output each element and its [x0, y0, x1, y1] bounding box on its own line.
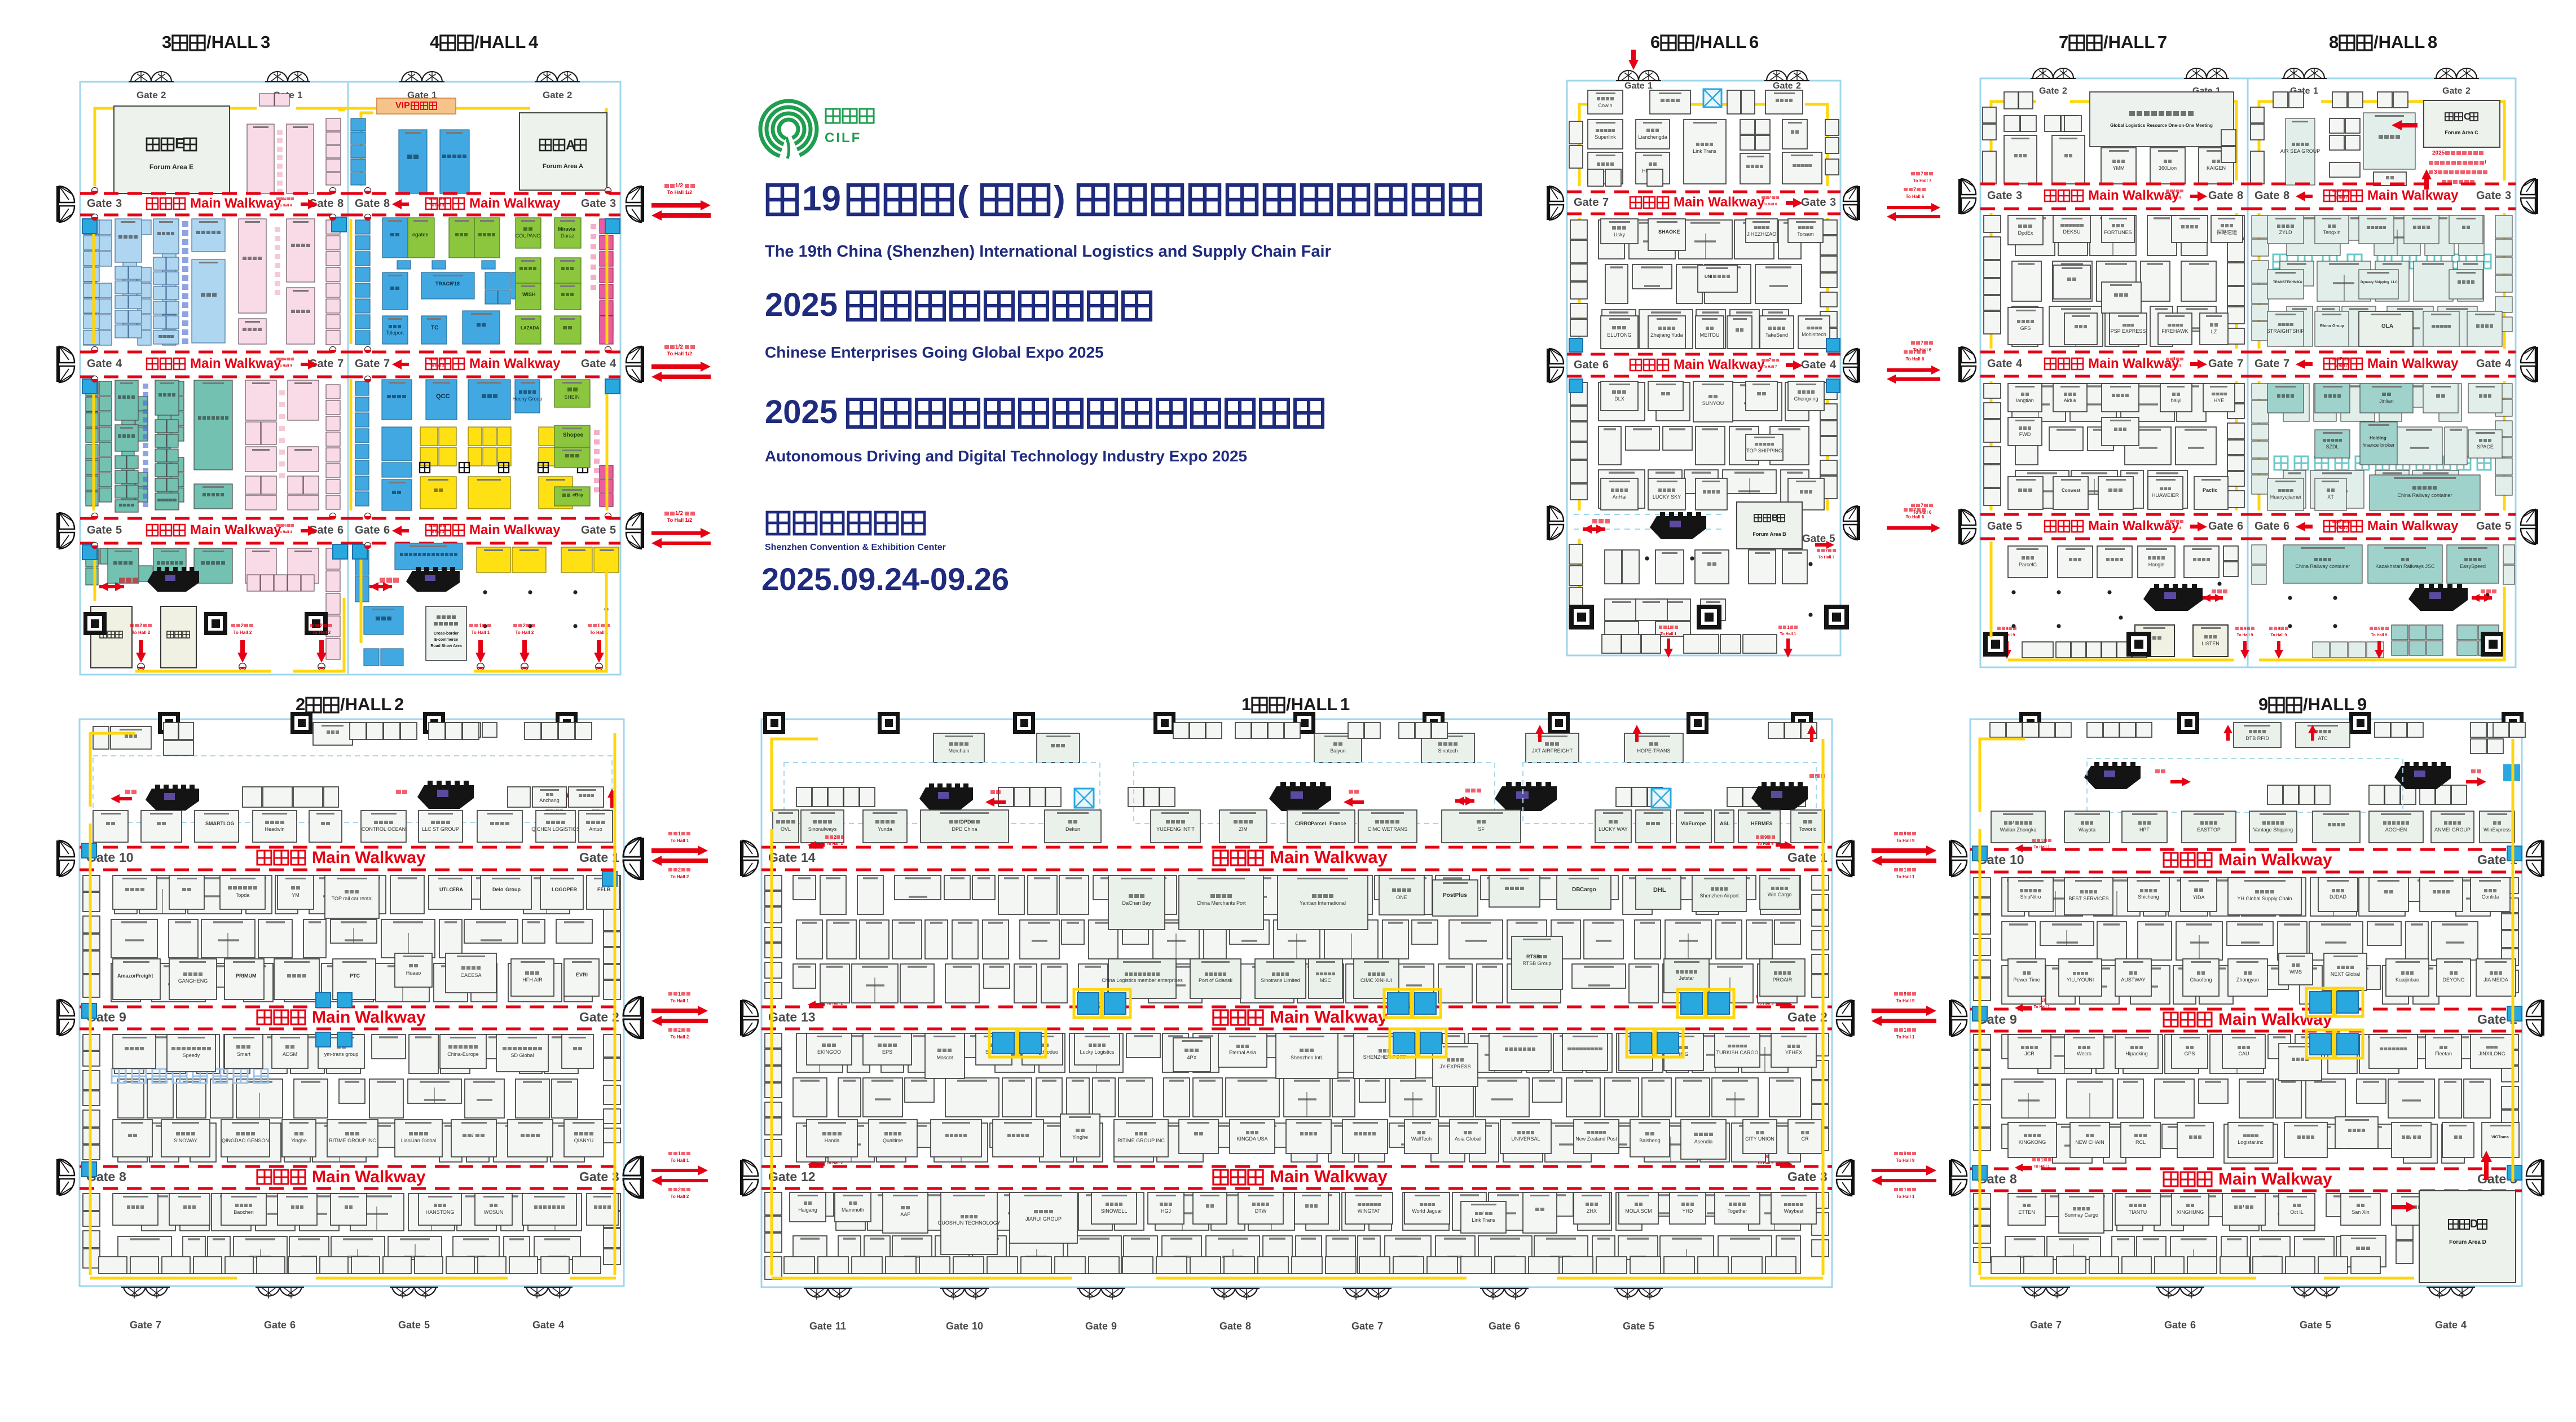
svg-text:To Hall 1: To Hall 1 [1661, 632, 1677, 636]
svg-text:Gate: Gate [532, 1319, 555, 1331]
svg-text:Link Trans: Link Trans [1472, 1217, 1495, 1223]
svg-text:Main: Main [190, 196, 221, 211]
svg-text:FORTUNES: FORTUNES [2104, 230, 2132, 235]
svg-text:LAZADA: LAZADA [521, 325, 539, 331]
svg-text:DHL: DHL [1653, 887, 1666, 893]
svg-text:ZYLD: ZYLD [2279, 230, 2292, 235]
svg-text:Main: Main [2218, 851, 2257, 869]
svg-text:Shopee: Shopee [563, 432, 584, 438]
svg-text:Mascot: Mascot [936, 1055, 953, 1060]
svg-text:KINGDA USA: KINGDA USA [1236, 1136, 1267, 1142]
svg-text:/DPD: /DPD [959, 819, 971, 825]
svg-text:Gate: Gate [2476, 358, 2501, 370]
svg-text:To Hall 1: To Hall 1 [1780, 632, 1796, 636]
svg-text:Hipacking: Hipacking [2125, 1051, 2148, 1056]
svg-text:9: 9 [1904, 831, 1906, 837]
svg-text:To Hall 2: To Hall 2 [827, 842, 843, 846]
svg-text:2: 2 [678, 1027, 681, 1033]
svg-text:DpdEx: DpdEx [2018, 230, 2033, 236]
svg-text:YUEFENG INT'T: YUEFENG INT'T [1156, 826, 1195, 832]
svg-text:9: 9 [2357, 694, 2367, 714]
svg-text:Logistar.inc: Logistar.inc [2238, 1139, 2264, 1145]
svg-text:Gate: Gate [2208, 190, 2233, 202]
svg-text:Gate: Gate [355, 524, 380, 536]
svg-text:2: 2 [567, 90, 572, 100]
svg-text:JY-EXPRESS: JY-EXPRESS [1439, 1064, 1470, 1069]
svg-text:Walkway: Walkway [1708, 195, 1765, 210]
svg-text:Gate: Gate [130, 1319, 152, 1331]
svg-text:6: 6 [290, 1319, 296, 1331]
svg-text:OVL: OVL [781, 826, 791, 832]
svg-text:10: 10 [2010, 852, 2024, 867]
svg-text:Main: Main [469, 196, 500, 211]
svg-text:14: 14 [801, 850, 816, 865]
svg-text:9: 9 [2244, 626, 2247, 631]
svg-text:6: 6 [337, 524, 344, 536]
svg-text:Teleport: Teleport [386, 330, 404, 336]
svg-text:Walkway: Walkway [2402, 356, 2459, 371]
svg-text:Gate: Gate [2476, 520, 2501, 532]
svg-text:DTW: DTW [1255, 1208, 1267, 1214]
svg-text:2: 2 [2465, 86, 2471, 96]
svg-text:Gate: Gate [1574, 196, 1599, 209]
svg-text:Sinotech: Sinotech [1438, 748, 1457, 754]
svg-text:To Hall 4: To Hall 4 [278, 531, 292, 534]
svg-text:Asendia: Asendia [1694, 1139, 1713, 1144]
svg-text:Gate: Gate [581, 524, 606, 536]
svg-text:8: 8 [2283, 190, 2289, 202]
svg-text:Shenzhen Convention & Exhibiti: Shenzhen Convention & Exhibition Center [765, 543, 946, 552]
svg-text:Walkway: Walkway [224, 196, 281, 211]
svg-text:To Hall 1/2: To Hall 1/2 [667, 190, 692, 195]
svg-text:Port of Gdansk: Port of Gdansk [1199, 978, 1233, 983]
svg-text:Toworld: Toworld [1799, 826, 1816, 832]
svg-text:Freight: Freight [136, 973, 153, 979]
svg-text:5: 5 [424, 1319, 430, 1331]
svg-text:4PX: 4PX [1187, 1055, 1196, 1060]
svg-text:LLC ST GROUP: LLC ST GROUP [422, 826, 459, 832]
svg-text:DLX: DLX [1614, 396, 1624, 402]
svg-text:CILF: CILF [825, 130, 861, 146]
svg-text:To Hall 9: To Hall 9 [1896, 838, 1915, 843]
svg-text:2: 2 [296, 694, 305, 714]
svg-text:WinExpress: WinExpress [2483, 827, 2511, 833]
svg-text:Superlink: Superlink [1595, 134, 1616, 140]
svg-text:5: 5 [2326, 1319, 2331, 1331]
svg-text:1/2: 1/2 [675, 344, 683, 350]
svg-text:YIDA: YIDA [2192, 895, 2204, 900]
svg-text:10: 10 [972, 1320, 983, 1332]
svg-text:6: 6 [1602, 359, 1609, 371]
svg-text:Main: Main [1270, 847, 1310, 867]
svg-text:Gate: Gate [1787, 850, 1816, 865]
svg-text:7: 7 [1921, 503, 1923, 508]
svg-text:Gate: Gate [355, 358, 380, 370]
svg-text:9: 9 [2006, 626, 2009, 631]
svg-text:Main: Main [1674, 357, 1705, 372]
svg-text:SD Global: SD Global [510, 1053, 534, 1058]
svg-text:AAF: AAF [900, 1212, 910, 1217]
svg-text:4: 4 [1830, 359, 1837, 371]
svg-text:5: 5 [2016, 520, 2022, 532]
svg-text:DPD China: DPD China [952, 826, 977, 832]
svg-text:CAU: CAU [2238, 1051, 2249, 1056]
svg-text:19: 19 [802, 179, 841, 218]
svg-text:4: 4 [430, 32, 440, 52]
svg-text:MSC: MSC [1320, 978, 1332, 983]
svg-text:Autonomous Driving and Digital: Autonomous Driving and Digital Technolog… [765, 447, 1247, 465]
svg-text:YFHEX: YFHEX [1785, 1050, 1802, 1055]
svg-text:To Hall 2: To Hall 2 [671, 1034, 689, 1040]
svg-text:New Zealand Post: New Zealand Post [1575, 1136, 1617, 1142]
svg-text:To Hall 6: To Hall 6 [1906, 356, 1925, 362]
svg-text:Huanyujiamei: Huanyujiamei [2270, 494, 2301, 500]
svg-text:DJDAD: DJDAD [2330, 894, 2347, 900]
svg-text:/HALL: /HALL [2374, 32, 2425, 52]
svg-text:Wayota: Wayota [2079, 827, 2095, 833]
svg-text:7: 7 [2237, 358, 2243, 370]
svg-text:XT: XT [2327, 494, 2334, 500]
svg-text:6: 6 [2237, 520, 2243, 532]
svg-text:Walkway: Walkway [355, 1168, 426, 1186]
svg-text:1: 1 [479, 623, 482, 628]
svg-text:Main: Main [190, 522, 221, 538]
svg-text:WISH: WISH [522, 292, 536, 297]
svg-text:EPS: EPS [882, 1049, 892, 1055]
svg-text:Walkway: Walkway [504, 196, 561, 211]
svg-text:): ) [1054, 179, 1065, 218]
svg-text:7: 7 [1769, 358, 1771, 362]
svg-text:Qualtime: Qualtime [883, 1138, 903, 1143]
svg-text:Gate: Gate [1987, 190, 2012, 202]
svg-text:Amazon: Amazon [117, 973, 137, 979]
svg-text:Main: Main [2088, 356, 2119, 371]
svg-text:1: 1 [678, 831, 681, 837]
svg-text:MEITOU: MEITOU [1700, 332, 1720, 338]
svg-text:To Hall 3: To Hall 3 [430, 531, 444, 534]
svg-text:Aiduk: Aiduk [2064, 398, 2077, 403]
svg-text:Gate: Gate [1987, 358, 2012, 370]
svg-text:Cross-border: Cross-border [434, 632, 459, 636]
svg-text:DEKSU: DEKSU [2063, 229, 2080, 235]
svg-text:To Hall 1: To Hall 1 [671, 1158, 689, 1163]
svg-text:LZ: LZ [2211, 329, 2217, 334]
svg-text:To Hall 7: To Hall 7 [1818, 556, 1835, 560]
svg-text:VIP: VIP [395, 101, 410, 111]
svg-text:To Hall 9: To Hall 9 [2237, 633, 2253, 637]
svg-text:2025: 2025 [2432, 150, 2445, 156]
svg-text:Gate: Gate [2254, 358, 2279, 370]
svg-text:Baiyun: Baiyun [1330, 748, 1346, 754]
svg-text:Power Time: Power Time [2013, 977, 2040, 983]
svg-text:China Merchants Port: China Merchants Port [1196, 900, 1246, 906]
svg-text:WallTech: WallTech [1411, 1136, 1432, 1142]
svg-text:2025.09.24-09.26: 2025.09.24-09.26 [761, 561, 1009, 597]
svg-text:1: 1 [297, 90, 302, 100]
svg-text:4: 4 [610, 358, 617, 370]
svg-text:China Logistics member enterpr: China Logistics member enterprises [1102, 978, 1183, 983]
svg-text:To Hall 9: To Hall 9 [1896, 1158, 1915, 1163]
svg-text:1: 1 [1904, 1187, 1906, 1192]
svg-text:Walkway: Walkway [2261, 1170, 2332, 1188]
svg-text:7: 7 [1921, 340, 1923, 346]
svg-text:5: 5 [2505, 520, 2511, 532]
svg-text:4: 4 [2016, 358, 2023, 370]
svg-text:2025: 2025 [765, 287, 838, 323]
svg-text:2: 2 [678, 867, 681, 873]
svg-text:WMS: WMS [2289, 969, 2302, 975]
svg-text:ASL: ASL [1720, 821, 1730, 826]
svg-text:JIHEZHIZAO: JIHEZHIZAO [1747, 231, 1777, 237]
svg-text:Gate: Gate [579, 1169, 608, 1184]
svg-text:To Hall 7: To Hall 7 [1763, 366, 1777, 369]
svg-text:2: 2 [834, 835, 836, 840]
svg-text:Hangle: Hangle [2148, 562, 2165, 567]
svg-text:5: 5 [116, 524, 122, 536]
svg-text:2: 2 [320, 623, 323, 628]
svg-text:Gate: Gate [1351, 1320, 1374, 1332]
svg-text:3: 3 [436, 524, 438, 528]
svg-text:Parcel: Parcel [1311, 821, 1326, 826]
svg-text:Gate: Gate [2476, 190, 2501, 202]
svg-text:Gate: Gate [2442, 86, 2463, 96]
svg-text:HUAWEIER: HUAWEIER [2152, 492, 2179, 498]
svg-text:11: 11 [835, 1320, 846, 1332]
svg-text:Gate: Gate [2254, 190, 2279, 202]
svg-text:Gate: Gate [2208, 520, 2233, 532]
svg-text:To Hall 1: To Hall 1 [1896, 874, 1915, 879]
svg-text:HYE: HYE [2214, 398, 2225, 403]
svg-text:To Hall 2: To Hall 2 [234, 630, 252, 635]
svg-text:CIRRO: CIRRO [1295, 821, 1311, 826]
svg-text:KINGKONG: KINGKONG [2019, 1139, 2046, 1145]
svg-text:1/2: 1/2 [675, 510, 683, 517]
svg-text:Topda: Topda [236, 892, 250, 898]
svg-text:GLA: GLA [2381, 323, 2393, 329]
svg-text:To Hall 8: To Hall 8 [2168, 196, 2182, 200]
svg-text:4: 4 [284, 197, 286, 201]
svg-text:1: 1 [1648, 81, 1653, 91]
svg-text:COUPANG: COUPANG [516, 233, 541, 239]
svg-text:Gate: Gate [581, 358, 606, 370]
svg-text:Walkway: Walkway [224, 356, 281, 371]
svg-text:Forum Area C: Forum Area C [2445, 130, 2478, 135]
svg-text:Conlida: Conlida [2482, 894, 2499, 900]
svg-text:Zhongyun: Zhongyun [2236, 977, 2259, 983]
svg-text:China-Europe: China-Europe [447, 1051, 479, 1057]
svg-text:EASTTOP: EASTTOP [2197, 827, 2221, 833]
svg-text:2: 2 [678, 1187, 681, 1192]
svg-text:Waybest: Waybest [1784, 1208, 1804, 1214]
svg-text:CR: CR [1802, 1136, 1809, 1142]
svg-text:8: 8 [2173, 190, 2176, 193]
svg-text:To Hall 6: To Hall 6 [1913, 347, 1932, 353]
svg-text:8: 8 [337, 197, 344, 210]
svg-text:JIARUI GROUP: JIARUI GROUP [1025, 1216, 1062, 1222]
svg-text:Wecro: Wecro [2077, 1051, 2091, 1056]
svg-text:A: A [566, 138, 575, 153]
svg-text:ELUTONG: ELUTONG [1607, 332, 1631, 338]
svg-text:Group: Group [2332, 324, 2344, 328]
svg-text:Speedy: Speedy [183, 1053, 200, 1058]
svg-text:Link Trans: Link Trans [1693, 148, 1716, 154]
svg-text:FELB: FELB [597, 887, 611, 892]
svg-text:Gate: Gate [1773, 81, 1793, 91]
svg-text:Gate: Gate [2477, 852, 2506, 867]
svg-text:Gate: Gate [2208, 358, 2233, 370]
svg-text:SINOWELL: SINOWELL [1101, 1208, 1128, 1214]
svg-text:9: 9 [2010, 1012, 2017, 1027]
svg-text:To Hall 2: To Hall 2 [671, 1194, 689, 1199]
svg-text:PROAIR: PROAIR [1773, 977, 1793, 983]
svg-text:Mohisttech: Mohisttech [1802, 332, 1826, 337]
svg-text:UNIVERSAL: UNIVERSAL [1511, 1136, 1540, 1142]
svg-text:3: 3 [610, 197, 616, 210]
svg-text:Gate: Gate [2254, 520, 2279, 532]
svg-text:7: 7 [1921, 171, 1923, 177]
svg-text:RTSB Group: RTSB Group [1522, 961, 1551, 966]
svg-text:finance broker: finance broker [2362, 442, 2394, 448]
svg-text:To Hall 8: To Hall 8 [2168, 364, 2182, 368]
svg-text:Together: Together [1727, 1208, 1747, 1214]
svg-text:Main: Main [2367, 188, 2398, 203]
svg-text:Sinorailways: Sinorailways [808, 826, 837, 832]
svg-text:QIANYU: QIANYU [574, 1138, 594, 1143]
svg-text:(: ( [957, 179, 969, 218]
svg-text:8: 8 [2237, 190, 2243, 202]
svg-text:DEYONG: DEYONG [2442, 977, 2464, 983]
svg-text:TRANSTEKHNIKA: TRANSTEKHNIKA [2273, 281, 2302, 284]
svg-text:6: 6 [384, 524, 390, 536]
svg-text:/HALL: /HALL [474, 32, 526, 52]
svg-text:HPF: HPF [2139, 827, 2150, 833]
svg-text:8: 8 [2010, 1172, 2017, 1186]
svg-text:JCR: JCR [2024, 1051, 2035, 1056]
svg-text:Walkway: Walkway [2402, 188, 2459, 203]
svg-text:To Hall 1/2: To Hall 1/2 [667, 351, 692, 356]
svg-text:SUNYOU: SUNYOU [1702, 400, 1724, 406]
svg-text:UTLC: UTLC [439, 887, 453, 892]
svg-text:KAIGEN: KAIGEN [2207, 165, 2226, 171]
svg-text:Gate: Gate [2039, 86, 2059, 96]
svg-text:Gate: Gate [2477, 1012, 2506, 1027]
svg-text:10: 10 [119, 850, 134, 865]
svg-text:To Hall 1: To Hall 1 [671, 998, 689, 1003]
svg-text:Walkway: Walkway [224, 522, 281, 538]
svg-text:7: 7 [2283, 358, 2289, 370]
svg-text:Hecny Group: Hecny Group [512, 396, 542, 402]
svg-text:To Hall 9: To Hall 9 [2271, 633, 2287, 637]
svg-text:Antuo: Antuo [589, 826, 602, 832]
svg-text:Walkway: Walkway [2261, 851, 2332, 869]
svg-text:Gate: Gate [1802, 533, 1826, 545]
svg-text:Walkway: Walkway [1314, 1166, 1388, 1186]
svg-text:/: / [2485, 160, 2486, 166]
svg-text:9: 9 [1904, 1151, 1906, 1156]
svg-text:Anchang: Anchang [539, 798, 560, 803]
svg-text:7: 7 [384, 358, 390, 370]
svg-text:World Jaguar: World Jaguar [1412, 1208, 1442, 1214]
svg-text:TakeSend: TakeSend [1765, 332, 1788, 338]
svg-text:To Hall 7: To Hall 7 [2334, 196, 2348, 200]
svg-text:1: 1 [678, 1151, 681, 1156]
svg-text:Walkway: Walkway [1314, 1007, 1388, 1027]
svg-text:To Hall 1: To Hall 1 [1896, 1194, 1915, 1199]
svg-text:Asia Global: Asia Global [1455, 1136, 1481, 1142]
svg-text:5: 5 [1649, 1320, 1654, 1332]
svg-text:To Hall 6: To Hall 6 [1913, 510, 1932, 515]
svg-text:To Hall 2: To Hall 2 [312, 630, 331, 635]
svg-text:3: 3 [116, 197, 122, 210]
svg-text:9: 9 [2278, 626, 2280, 631]
svg-text:PSP EXPRESS: PSP EXPRESS [2111, 328, 2146, 334]
svg-text:718: 718 [451, 281, 460, 287]
svg-text:France: France [1329, 821, 1346, 826]
svg-text:Main: Main [2088, 188, 2119, 203]
svg-text:GPS: GPS [2184, 1051, 2195, 1056]
svg-text:ATC: ATC [2318, 736, 2328, 741]
svg-text:Yinghe: Yinghe [1072, 1134, 1088, 1140]
svg-text:7: 7 [1377, 1320, 1383, 1332]
svg-text:Usky: Usky [1614, 232, 1625, 237]
svg-text:Global Logistics Resource One-: Global Logistics Resource One-on-One Mee… [2110, 123, 2213, 128]
svg-text:Gate: Gate [1624, 81, 1645, 91]
svg-text:Main: Main [2218, 1010, 2257, 1029]
svg-text:Sinotrans Limited: Sinotrans Limited [1261, 978, 1300, 983]
svg-text:1/2: 1/2 [675, 183, 683, 189]
svg-text:Gate: Gate [1489, 1320, 1511, 1332]
svg-text:Gate: Gate [1801, 196, 1826, 209]
svg-text:CIMC XINHUI: CIMC XINHUI [1360, 978, 1392, 983]
svg-text:Walkway: Walkway [504, 356, 561, 371]
svg-text:Road Show Area: Road Show Area [430, 644, 461, 648]
svg-text:Jetstar: Jetstar [1679, 975, 1694, 981]
svg-text:7: 7 [156, 1319, 161, 1331]
svg-text:Chengxing: Chengxing [1794, 396, 1818, 402]
svg-text:Chaofeng: Chaofeng [2190, 977, 2212, 983]
svg-text:2025: 2025 [765, 394, 838, 430]
svg-text:Dynasty: Dynasty [2361, 281, 2374, 284]
svg-text:2: 2 [2062, 86, 2067, 96]
svg-text:9: 9 [119, 1010, 126, 1024]
svg-text:JIA MEIDA: JIA MEIDA [2483, 977, 2508, 983]
svg-text:4: 4 [2461, 1319, 2467, 1331]
svg-text:Mammoth: Mammoth [842, 1207, 864, 1213]
svg-text:To Hall 3: To Hall 3 [430, 204, 444, 208]
svg-text:To Hall 1: To Hall 1 [2034, 1005, 2050, 1009]
svg-text:3: 3 [436, 197, 438, 201]
svg-text:8: 8 [119, 1169, 126, 1184]
svg-text:4: 4 [529, 32, 539, 52]
svg-text:Conwest: Conwest [2062, 488, 2081, 493]
svg-text:6: 6 [2190, 1319, 2196, 1331]
svg-text:SPACE: SPACE [2477, 444, 2494, 450]
svg-text:AIR SEA GROUP: AIR SEA GROUP [2280, 148, 2320, 154]
svg-text:Gate: Gate [2435, 1319, 2458, 1331]
svg-text:YHD: YHD [1682, 1208, 1693, 1214]
svg-text:/HALL: /HALL [340, 694, 391, 714]
svg-text:To Hall 4: To Hall 4 [278, 364, 292, 368]
svg-text:1: 1 [597, 623, 600, 628]
svg-text:/HALL: /HALL [2103, 32, 2155, 52]
svg-text:Lianchengda: Lianchengda [1638, 134, 1667, 140]
svg-text:Jinlian: Jinlian [2379, 398, 2394, 404]
svg-text:Daraz: Daraz [561, 233, 575, 239]
svg-text:2: 2 [523, 623, 526, 628]
svg-text:CITY UNION: CITY UNION [1745, 1136, 1774, 1142]
svg-text:9: 9 [2378, 626, 2381, 631]
svg-text:The 19th China (Shenzhen) Inte: The 19th China (Shenzhen) International … [765, 243, 1331, 261]
